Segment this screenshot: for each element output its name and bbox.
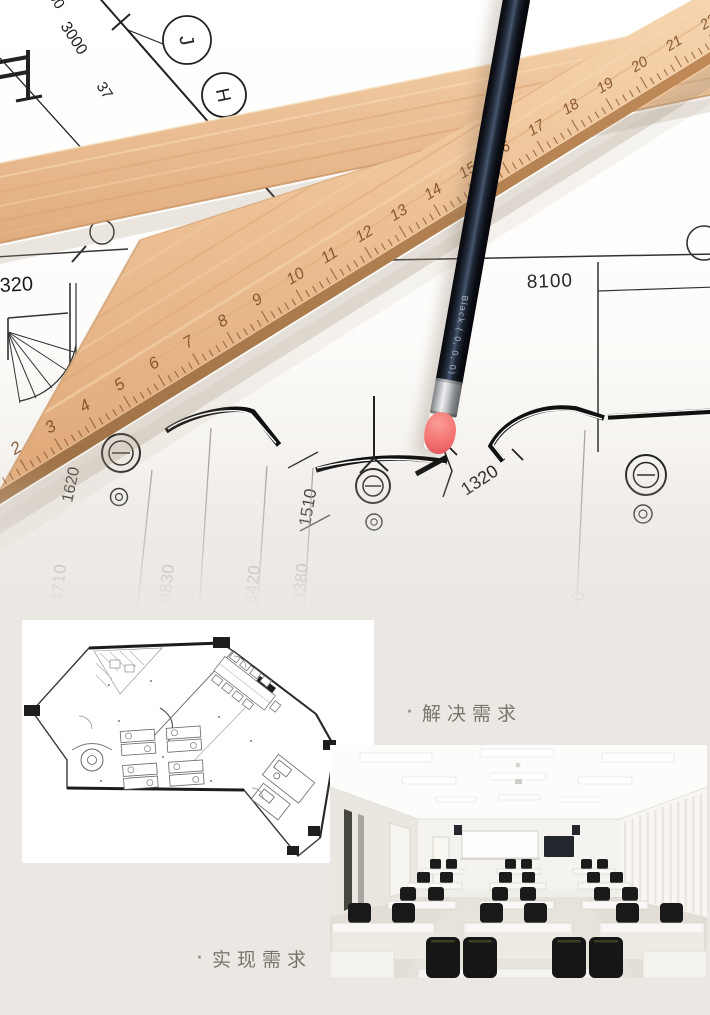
projector-mount bbox=[515, 779, 522, 784]
caption-solve-label: 解决需求 bbox=[422, 699, 522, 726]
bullet-icon: · bbox=[196, 946, 203, 971]
classroom-photo bbox=[330, 745, 707, 978]
wooden-rulers: 2345678910111213141516171819202122 bbox=[0, 0, 710, 620]
whiteboard bbox=[462, 831, 538, 858]
classroom-image bbox=[330, 745, 707, 978]
floor-plan-image bbox=[22, 620, 374, 863]
stage-platform bbox=[418, 889, 620, 897]
caption-implement-label: 实现需求 bbox=[212, 945, 312, 972]
left-window-frame bbox=[344, 809, 352, 911]
wooden-ruler: 2345678910111213141516171819202122 bbox=[0, 0, 710, 504]
left-window-frame-2 bbox=[358, 814, 364, 906]
bullet-icon: · bbox=[406, 700, 413, 725]
caption-implement: · 实现需求 bbox=[196, 945, 312, 972]
floor-plan-card bbox=[22, 620, 374, 863]
blueprint-hero: 3000 90 37 J H bbox=[0, 0, 710, 620]
speaker-left bbox=[454, 825, 462, 835]
ceiling-fixture bbox=[516, 763, 521, 768]
caption-solve: · 解决需求 bbox=[406, 699, 522, 726]
page: 3000 90 37 J H bbox=[0, 0, 710, 1015]
wall-tv-screen bbox=[544, 836, 574, 857]
speaker-right bbox=[572, 825, 580, 835]
left-door bbox=[390, 823, 410, 897]
